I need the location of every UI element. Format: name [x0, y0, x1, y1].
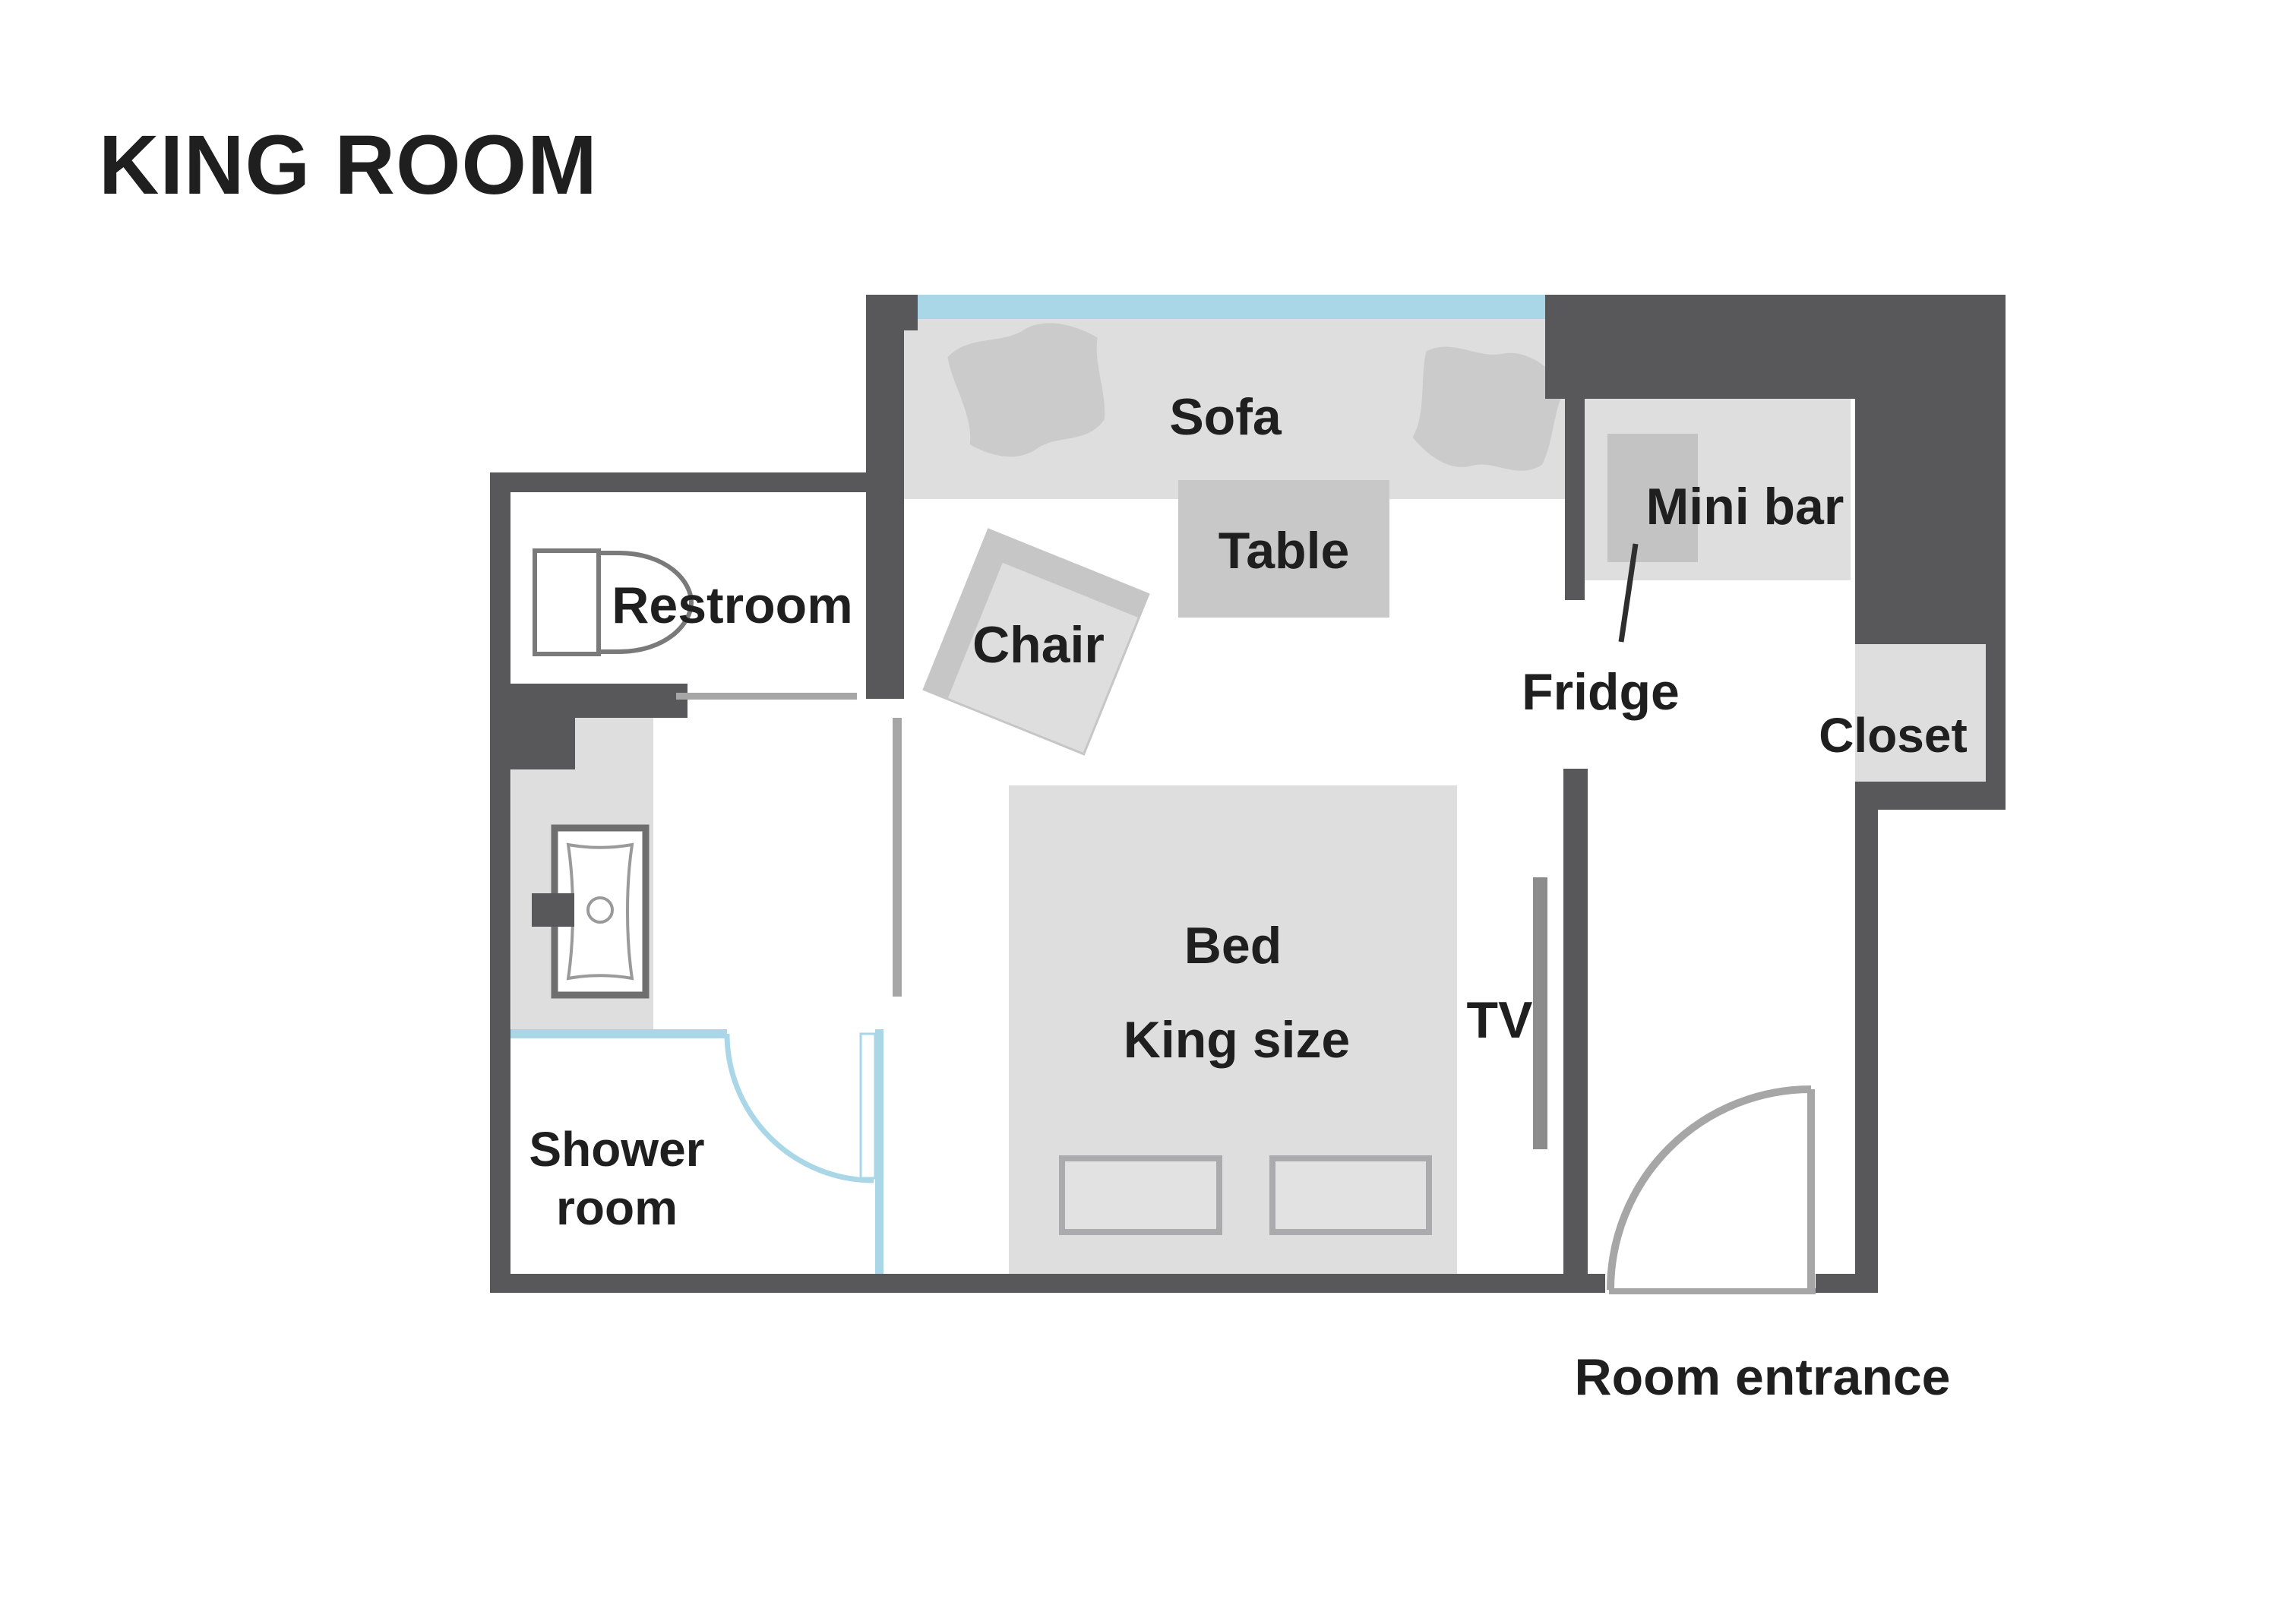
- wall-bottom: [490, 1274, 1605, 1293]
- tv-label: TV: [1467, 991, 1533, 1049]
- entrance-sill-line: [1609, 1288, 1816, 1294]
- pillow-left-icon: [1062, 1158, 1219, 1232]
- floor-plan-canvas: KING ROOM Sofa Table Chair Restroom Show…: [0, 0, 2279, 1624]
- shower-glass-top: [510, 1029, 727, 1038]
- room-entrance-label: Room entrance: [1575, 1348, 1951, 1406]
- window-icon: [918, 295, 1545, 319]
- wall-restroom-top: [490, 472, 904, 492]
- wall-right-lower: [1855, 810, 1878, 1293]
- bathroom-partition-line: [893, 718, 902, 997]
- wall-restroom-bottom-block: [510, 718, 575, 769]
- bed-label-line2: King size: [1124, 1011, 1351, 1069]
- fridge-label: Fridge: [1522, 663, 1680, 721]
- floor-plan-page: KING ROOM Sofa Table Chair Restroom Show…: [0, 0, 2279, 1624]
- sofa-label: Sofa: [1169, 388, 1282, 446]
- shower-glass-right: [875, 1029, 883, 1274]
- wall-left-of-sofa: [866, 295, 904, 699]
- wall-bottom-right-stub: [1816, 1274, 1878, 1293]
- wall-minibar-divider: [1565, 399, 1585, 600]
- shower-door-leaf-icon: [861, 1034, 875, 1178]
- closet-label: Closet: [1819, 708, 1968, 763]
- chair-label: Chair: [972, 616, 1105, 674]
- table-label: Table: [1219, 522, 1350, 580]
- entrance-door-arc-icon: [1610, 1089, 1811, 1290]
- restroom-door-line: [676, 693, 857, 700]
- wall-top-right: [1545, 295, 2006, 399]
- restroom-label: Restroom: [612, 577, 852, 634]
- wall-restroom-bottom-bar: [510, 684, 687, 718]
- sink-tap-icon: [532, 893, 574, 927]
- wall-tv-partition: [1563, 769, 1588, 1293]
- bed-label-line1: Bed: [1184, 917, 1282, 975]
- pillow-right-icon: [1272, 1158, 1429, 1232]
- tv-shape: [1533, 877, 1547, 1149]
- page-title: KING ROOM: [99, 118, 598, 212]
- shower-room-label-line2: room: [556, 1180, 678, 1235]
- mini-bar-label: Mini bar: [1646, 478, 1844, 536]
- wall-left-outer: [490, 472, 510, 1293]
- shower-room-label-line1: Shower: [529, 1122, 704, 1177]
- shower-door-arc-icon: [727, 1034, 874, 1180]
